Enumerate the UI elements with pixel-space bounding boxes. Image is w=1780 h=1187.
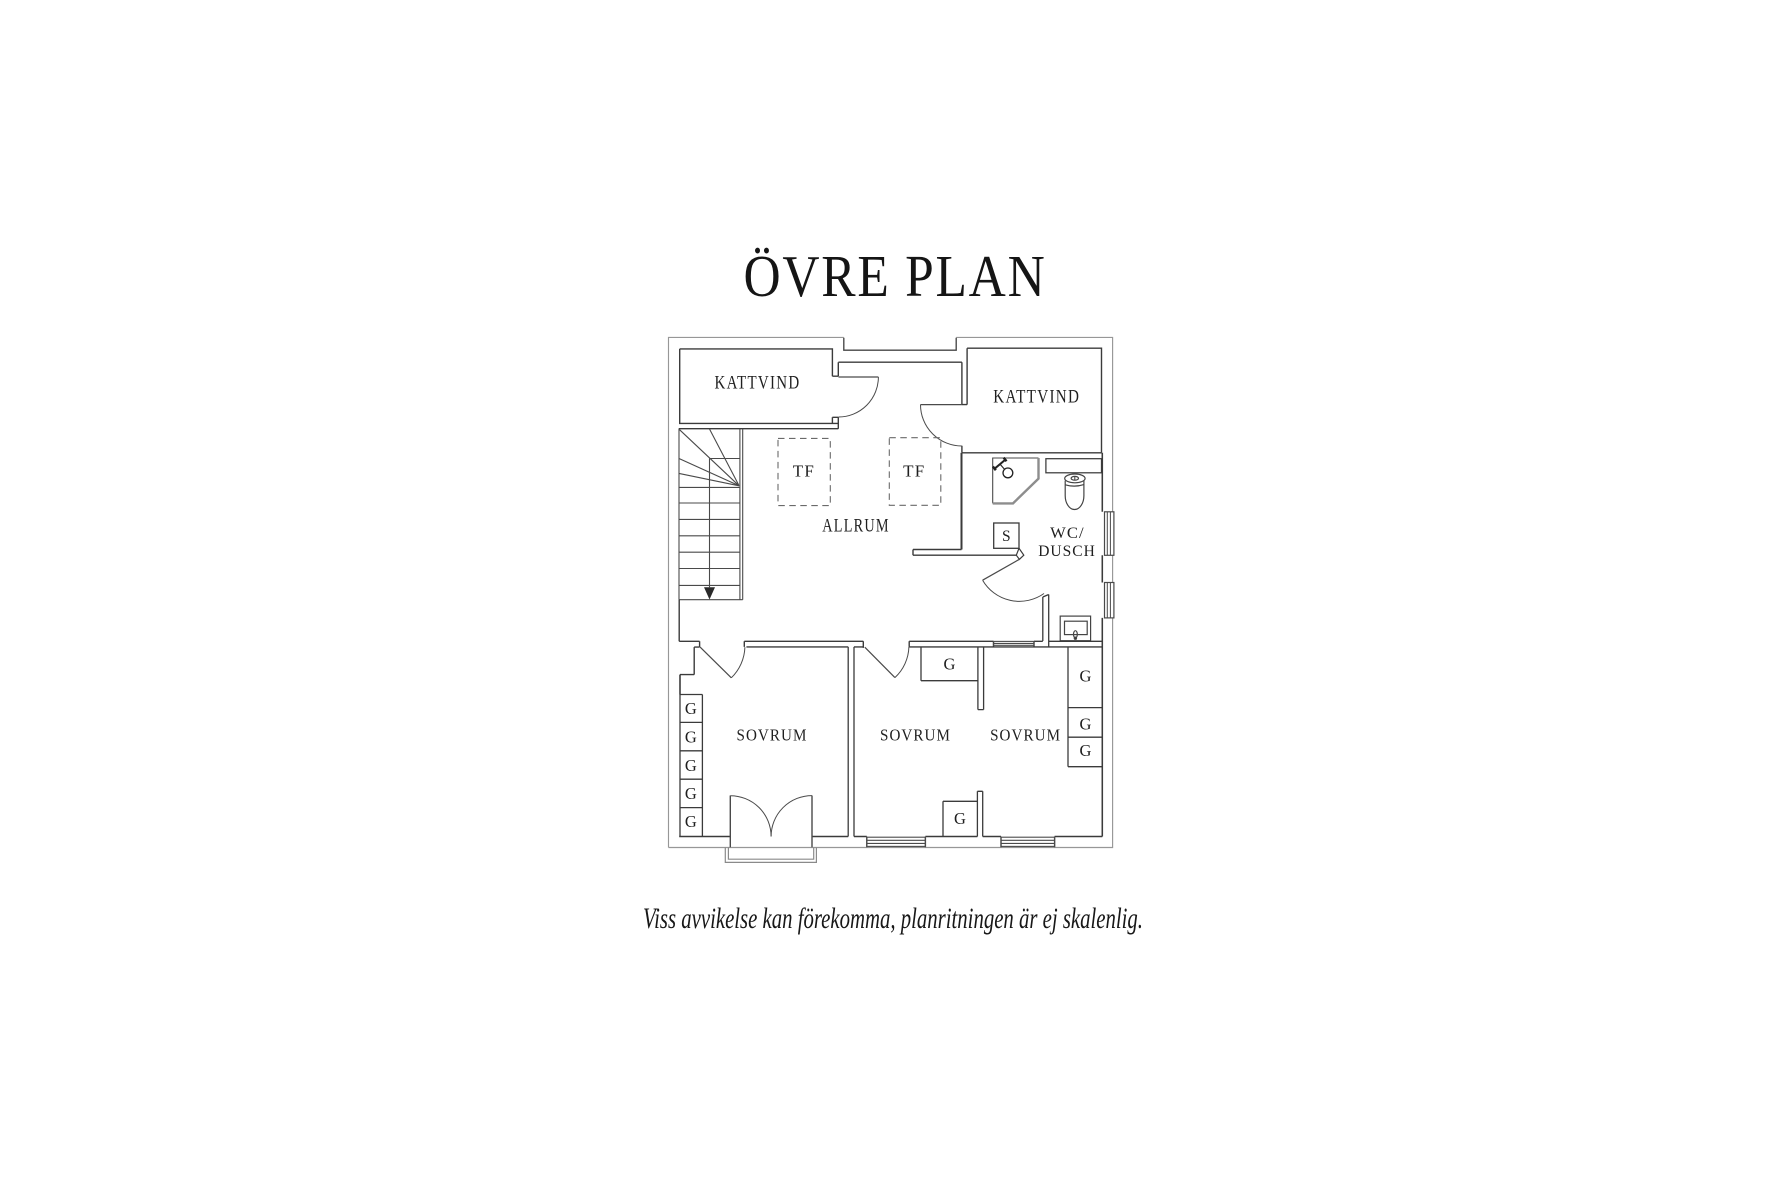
svg-text:KATTVIND: KATTVIND bbox=[715, 373, 801, 394]
svg-text:TF: TF bbox=[903, 461, 925, 480]
svg-text:G: G bbox=[685, 784, 697, 803]
svg-text:KATTVIND: KATTVIND bbox=[993, 387, 1080, 408]
svg-text:G: G bbox=[1080, 741, 1092, 760]
svg-text:G: G bbox=[944, 655, 956, 674]
svg-text:S: S bbox=[1002, 528, 1011, 545]
svg-text:G: G bbox=[685, 756, 697, 775]
svg-text:ALLRUM: ALLRUM bbox=[822, 515, 890, 536]
svg-text:DUSCH: DUSCH bbox=[1038, 543, 1096, 560]
svg-text:SOVRUM: SOVRUM bbox=[880, 726, 951, 745]
svg-text:G: G bbox=[685, 812, 697, 831]
svg-text:G: G bbox=[1080, 666, 1092, 685]
svg-text:G: G bbox=[685, 727, 697, 746]
svg-text:WC/: WC/ bbox=[1050, 525, 1085, 542]
svg-text:TF: TF bbox=[793, 461, 815, 480]
svg-text:G: G bbox=[954, 809, 966, 828]
svg-text:Viss avvikelse kan förekomma,: Viss avvikelse kan förekomma, planritnin… bbox=[643, 902, 1143, 935]
svg-text:ÖVRE PLAN: ÖVRE PLAN bbox=[744, 243, 1047, 309]
svg-text:G: G bbox=[685, 699, 697, 718]
svg-text:SOVRUM: SOVRUM bbox=[737, 726, 808, 745]
svg-text:G: G bbox=[1080, 715, 1092, 734]
svg-text:SOVRUM: SOVRUM bbox=[990, 726, 1061, 745]
